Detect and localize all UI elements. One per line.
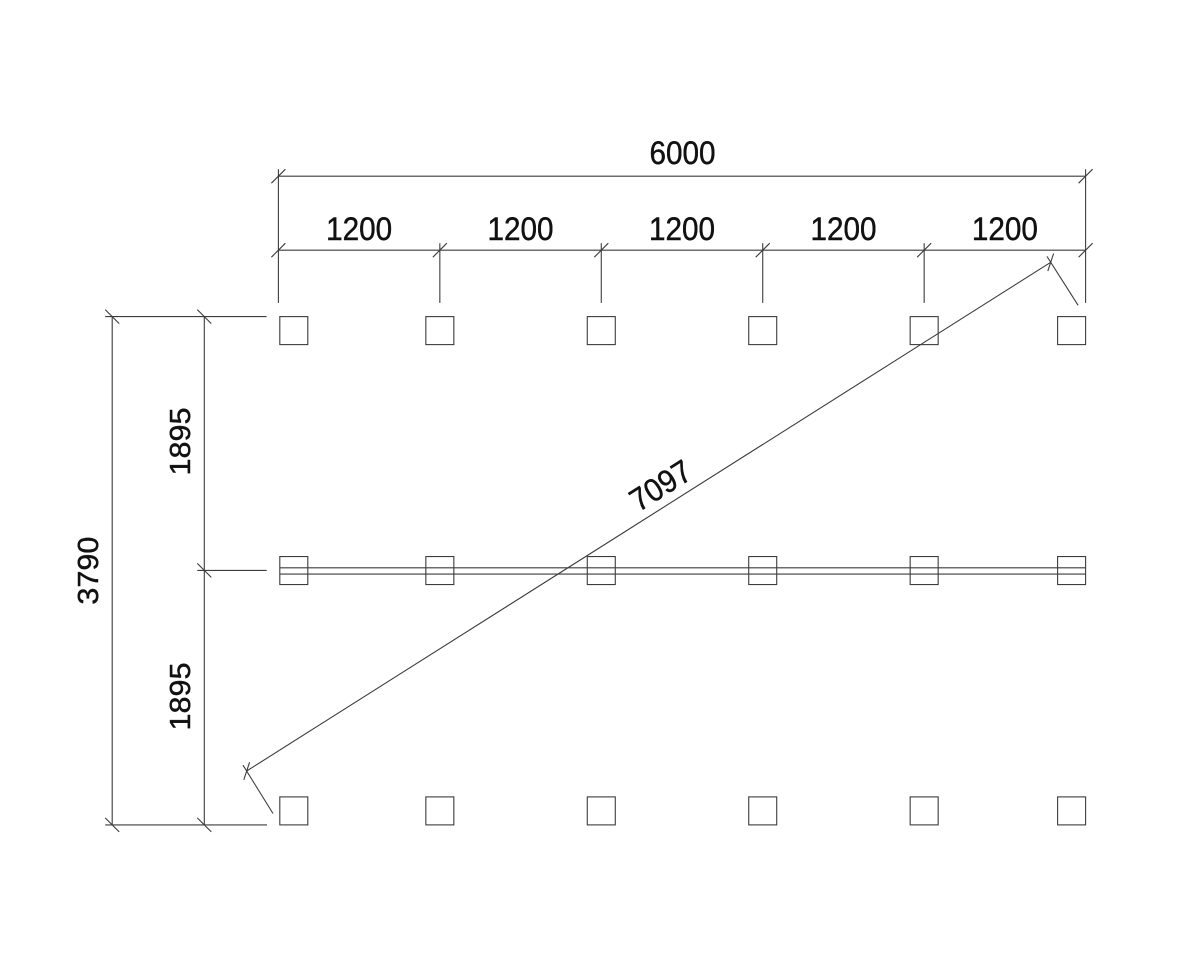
svg-text:6000: 6000	[650, 135, 716, 171]
svg-text:1200: 1200	[972, 211, 1038, 247]
svg-text:3790: 3790	[73, 537, 105, 605]
svg-text:7097: 7097	[623, 453, 698, 519]
svg-text:1895: 1895	[165, 663, 197, 731]
svg-text:1200: 1200	[326, 211, 392, 247]
svg-text:1895: 1895	[165, 408, 197, 476]
svg-text:1200: 1200	[810, 211, 876, 247]
svg-text:1200: 1200	[488, 211, 554, 247]
svg-text:1200: 1200	[649, 211, 715, 247]
